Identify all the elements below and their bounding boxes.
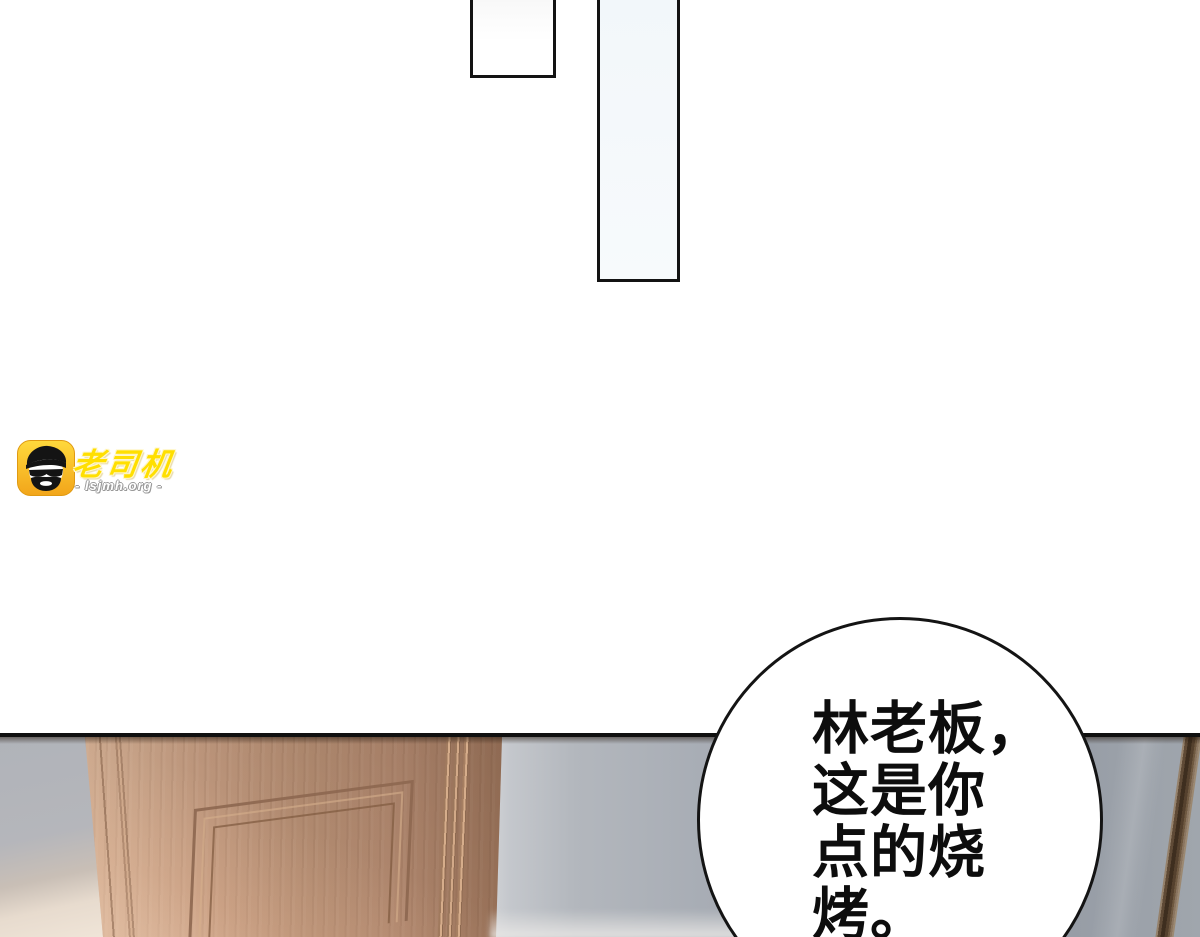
top-panel-rect-tall	[597, 0, 680, 282]
door-stile-molding	[437, 733, 477, 937]
site-watermark: 老司机 - lsjmh.org -	[17, 437, 217, 499]
speech-line: 点的烧	[812, 822, 1072, 884]
wooden-door	[84, 737, 502, 937]
speech-line: 林老板，	[812, 698, 1072, 760]
site-url-text: - lsjmh.org -	[75, 478, 162, 493]
door-panel-molding-inner	[208, 802, 395, 937]
door-panel-molding-mid	[198, 791, 403, 937]
speech-bubble: 林老板， 这是你 点的烧 烤。	[697, 617, 1103, 937]
driver-face-icon	[17, 440, 75, 496]
top-panel-rect-small	[470, 0, 556, 78]
door-panel-molding-outer	[188, 780, 414, 937]
speech-line: 这是你	[812, 760, 1072, 822]
comic-page: 老司机 - lsjmh.org - 林老板， 这是你 点的烧 烤。	[0, 0, 1200, 937]
speech-line: 烤。	[812, 884, 1072, 937]
speech-bubble-text: 林老板， 这是你 点的烧 烤。	[812, 698, 1072, 937]
